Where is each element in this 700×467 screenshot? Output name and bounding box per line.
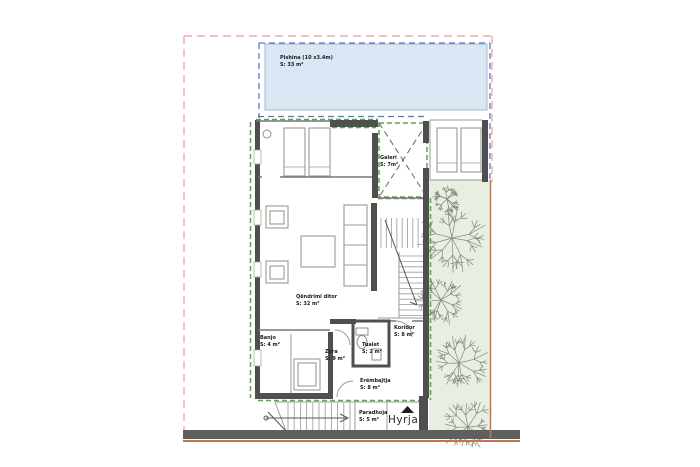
label-living-room: Qëndrimi ditorS: 32 m² bbox=[296, 294, 337, 309]
label-corridor: KoridorS: 8 m² bbox=[394, 325, 415, 340]
label-toilet: TualetS: 2 m² bbox=[362, 342, 382, 357]
garden-area bbox=[429, 180, 490, 432]
floor-plan-canvas: Pishina (10 x3.4m)S: 33 m² GaleriS: 7m² … bbox=[0, 0, 700, 467]
label-bathroom: BanjoS: 4 m² bbox=[260, 335, 280, 350]
label-windbreak: ErëmbajtjaS: 8 m² bbox=[360, 378, 391, 393]
staircase bbox=[378, 218, 423, 318]
label-gallery: GaleriS: 7m² bbox=[380, 155, 398, 170]
label-office: ZyraS: 9 m² bbox=[325, 349, 345, 364]
entrance-arrow-icon bbox=[401, 406, 414, 413]
label-porch: ParadhojaS: 5 m² bbox=[359, 410, 387, 425]
planter-icon bbox=[263, 130, 271, 138]
toilet-icon bbox=[356, 328, 368, 335]
label-entrance: Hyrja bbox=[388, 414, 418, 426]
pool-area bbox=[265, 44, 487, 110]
label-pool: Pishina (10 x3.4m)S: 33 m² bbox=[280, 55, 333, 70]
coffee-table-icon bbox=[301, 236, 335, 267]
floor-plan-drawing bbox=[0, 0, 700, 467]
